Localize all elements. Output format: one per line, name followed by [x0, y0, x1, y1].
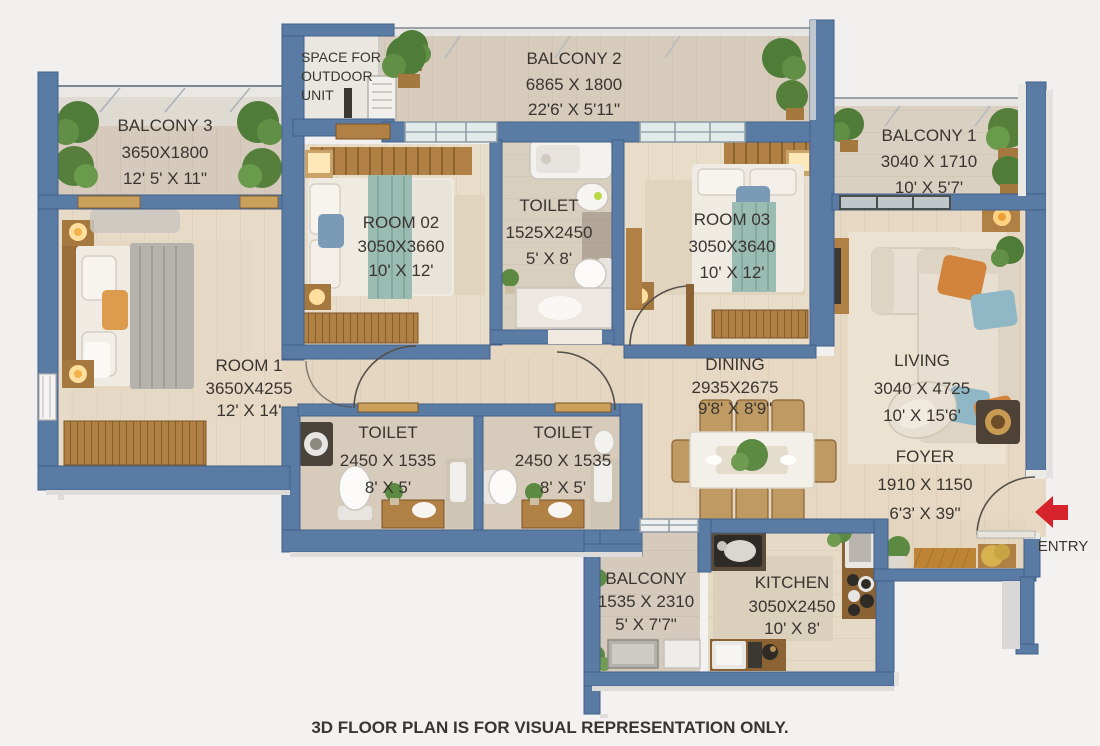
- svg-text:KITCHEN: KITCHEN: [755, 573, 830, 592]
- svg-text:TOILET: TOILET: [533, 423, 592, 442]
- svg-text:BALCONY 3: BALCONY 3: [117, 116, 212, 135]
- svg-text:UNIT: UNIT: [301, 87, 334, 103]
- svg-text:22'6' X 5'11": 22'6' X 5'11": [528, 100, 620, 119]
- svg-text:6'3' X 39": 6'3' X 39": [889, 504, 960, 523]
- svg-text:3050X2450: 3050X2450: [749, 597, 836, 616]
- svg-text:8' X 5': 8' X 5': [365, 478, 411, 497]
- svg-text:3040 X 1710: 3040 X 1710: [881, 152, 977, 171]
- svg-text:2450 X 1535: 2450 X 1535: [515, 451, 611, 470]
- svg-text:5' X 8': 5' X 8': [526, 249, 572, 268]
- svg-text:12' 5' X 11": 12' 5' X 11": [123, 169, 207, 188]
- svg-text:FOYER: FOYER: [896, 447, 955, 466]
- svg-text:3D FLOOR PLAN IS FOR VISUAL RE: 3D FLOOR PLAN IS FOR VISUAL REPRESENTATI…: [311, 718, 788, 737]
- svg-text:BALCONY 2: BALCONY 2: [526, 49, 621, 68]
- svg-text:5' X 7'7": 5' X 7'7": [615, 615, 677, 634]
- svg-text:BALCONY 1: BALCONY 1: [881, 126, 976, 145]
- svg-text:2450 X 1535: 2450 X 1535: [340, 451, 436, 470]
- svg-text:10' X 5'7': 10' X 5'7': [895, 178, 963, 197]
- svg-text:LIVING: LIVING: [894, 351, 950, 370]
- svg-text:1525X2450: 1525X2450: [506, 223, 593, 242]
- svg-text:10' X 12': 10' X 12': [699, 263, 764, 282]
- svg-text:10' X 15'6': 10' X 15'6': [883, 406, 961, 425]
- svg-text:3050X3660: 3050X3660: [358, 237, 445, 256]
- svg-text:ENTRY: ENTRY: [1038, 538, 1089, 555]
- svg-text:12' X 14': 12' X 14': [216, 401, 281, 420]
- svg-text:DINING: DINING: [705, 355, 765, 374]
- svg-text:10' X 12': 10' X 12': [368, 261, 433, 280]
- svg-text:ROOM 1: ROOM 1: [215, 356, 282, 375]
- svg-text:ROOM 03: ROOM 03: [694, 210, 771, 229]
- svg-text:TOILET: TOILET: [358, 423, 417, 442]
- svg-text:1910 X 1150: 1910 X 1150: [877, 475, 972, 494]
- svg-text:1535 X 2310: 1535 X 2310: [598, 592, 694, 611]
- svg-text:OUTDOOR: OUTDOOR: [301, 68, 373, 84]
- svg-text:9'8' X 8'9": 9'8' X 8'9": [698, 399, 772, 418]
- svg-text:BALCONY: BALCONY: [605, 569, 686, 588]
- svg-text:SPACE FOR: SPACE FOR: [301, 49, 381, 65]
- svg-text:6865 X 1800: 6865 X 1800: [526, 75, 622, 94]
- svg-text:3650X4255: 3650X4255: [206, 379, 293, 398]
- svg-text:10' X 8': 10' X 8': [764, 619, 820, 638]
- svg-text:3650X1800: 3650X1800: [122, 143, 209, 162]
- svg-text:2935X2675: 2935X2675: [692, 378, 779, 397]
- svg-text:TOILET: TOILET: [519, 196, 578, 215]
- svg-text:3040 X 4725: 3040 X 4725: [874, 379, 970, 398]
- svg-text:3050X3640: 3050X3640: [689, 237, 776, 256]
- svg-text:ROOM 02: ROOM 02: [363, 213, 440, 232]
- svg-text:8' X 5': 8' X 5': [540, 478, 586, 497]
